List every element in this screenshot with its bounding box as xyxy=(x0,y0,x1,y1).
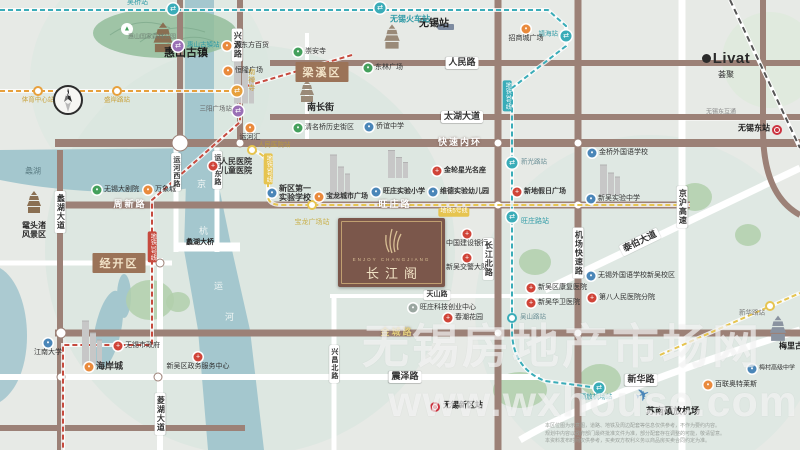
map-text: 蠡湖 xyxy=(25,168,41,177)
building-icon xyxy=(615,177,620,196)
poi-icon: + xyxy=(433,167,442,176)
road-label: 蠡湖大桥 xyxy=(186,239,214,247)
livat-brand: Livat xyxy=(713,50,751,67)
compass-icon: N xyxy=(51,83,85,117)
road-label: 周新路 xyxy=(113,200,146,210)
road-label: 太湖大道 xyxy=(441,111,483,123)
poi-icon: ▪ xyxy=(224,67,233,76)
metro-station-icon xyxy=(114,88,120,94)
buildings-illustration xyxy=(388,150,408,178)
poi-label: 崇安寺 xyxy=(305,48,326,56)
poi-label: 第八人民医院分院 xyxy=(599,294,655,302)
livat-logo-icon xyxy=(702,54,711,63)
poi-label: 梅村高级中学 xyxy=(759,366,795,373)
metro-station-icon: ⇄ xyxy=(594,383,605,394)
railway-station-label: 无锡新区站 xyxy=(443,402,483,411)
metro-line-badge: 地铁1号线 xyxy=(148,231,157,262)
metro-station-icon: ⇄ xyxy=(561,31,572,42)
poi-icon: ▪ xyxy=(294,124,303,133)
poi-label: 新地假日广场 xyxy=(524,188,566,196)
road-label: 快速内环 xyxy=(438,138,482,148)
metro-station-label: 新华路站 xyxy=(739,309,765,316)
disclaimer-text: 本区位图为示意图，道路、地铁及周边配套等信息仅供参考，不作为要约内容。 规划中内… xyxy=(545,423,795,446)
railway-station-icon xyxy=(772,125,782,135)
map-text: 鼋头渚 风景区 xyxy=(22,222,46,240)
map-text: 惠山古镇 xyxy=(164,47,208,59)
metro-station-label: 新光路站 xyxy=(521,158,547,165)
poi-icon: ▪ xyxy=(409,304,418,313)
building-icon xyxy=(403,162,408,178)
svg-text:N: N xyxy=(66,92,70,98)
poi-icon: ▪ xyxy=(522,25,531,34)
map-text: 杭 xyxy=(199,227,208,237)
metro-station-icon: ⇄ xyxy=(232,86,243,97)
poi-label: 新区第一 实验学校 xyxy=(279,184,311,202)
metro-station-label: 三阳广场站 xyxy=(200,105,233,112)
metro-station-label: 惠山古镇站 xyxy=(187,41,220,48)
poi-icon: ▪ xyxy=(429,188,438,197)
road-label: 蠡湖大道 xyxy=(55,191,66,233)
poi-label: 中国建设银行 xyxy=(446,240,488,248)
disclaimer-line: 规划中内容以政府部门最终批准文件为准，部分配套存在调整的可能，敬请留意。 xyxy=(545,431,795,439)
poi-icon: + xyxy=(209,162,218,171)
poi-icon: ▪ xyxy=(294,48,303,57)
road-label: 震泽路 xyxy=(388,371,421,383)
district-badge: 经开区 xyxy=(93,253,146,273)
poi-label: 海岸城 xyxy=(96,362,123,372)
metro-station-icon: ⇄ xyxy=(173,41,184,52)
metro-station-icon xyxy=(309,202,315,208)
map-text: 运 xyxy=(214,282,223,292)
project-marker: ENJOY CHANGJIANG 长江阁 xyxy=(338,218,445,287)
poi-label: 新吴区政务服务中心 xyxy=(167,363,230,371)
poi-label: 旺庄科技创业中心 xyxy=(420,304,476,312)
poi-icon: ▪ xyxy=(85,363,94,372)
building-icon xyxy=(600,165,607,196)
poi-icon: + xyxy=(527,299,536,308)
buildings-illustration xyxy=(82,321,102,366)
project-marker-border xyxy=(341,221,442,284)
poi-icon: ▪ xyxy=(223,42,232,51)
metro-station-label: 吴山路站 xyxy=(520,313,546,320)
building-icon xyxy=(82,321,89,366)
disclaimer-line: 本资料发布时间仅供参考，买卖双方权利义务以商品房买卖合同约定为准。 xyxy=(545,438,795,446)
metro-station-icon xyxy=(35,88,41,94)
metro-station-label: 无锡火车站 xyxy=(390,16,430,25)
metro-station-icon xyxy=(767,303,773,309)
metro-station-label: 旺庄路站 xyxy=(521,218,549,226)
district-badge: 梁溪区 xyxy=(296,62,349,82)
road-label: 旺庄路 xyxy=(378,200,411,210)
poi-icon: ▪ xyxy=(246,124,255,133)
poi-label: 旺庄实验小学 xyxy=(383,188,425,196)
poi-icon: ▪ xyxy=(268,189,277,198)
livat-mall-logo: Livat 荟聚 xyxy=(688,50,764,80)
poi-label: 运河汇 xyxy=(240,134,261,142)
building-icon xyxy=(608,173,614,196)
poi-label: 维德实验幼儿园 xyxy=(440,188,489,196)
poi-icon: ▪ xyxy=(587,272,596,281)
poi-icon: + xyxy=(463,254,472,263)
building-icon xyxy=(388,150,395,178)
metro-station-label: 硕放机场站 xyxy=(580,393,613,400)
poi-label: 新吴交警大队 xyxy=(446,264,488,272)
railway-station-label: 无锡东站 xyxy=(738,125,770,134)
poi-label: 万象城 xyxy=(155,186,176,194)
road-label: 新华路 xyxy=(624,374,657,386)
poi-icon: + xyxy=(513,188,522,197)
poi-label: 金桥外国语学校 xyxy=(599,149,648,157)
poi-label: 江南大学 xyxy=(34,349,62,357)
poi-label: 无锡大剧院 xyxy=(104,186,139,194)
forest-park-icon: ▲ xyxy=(123,25,132,34)
metro-station-label: 体育中心站 xyxy=(22,96,55,103)
building-icon xyxy=(234,59,241,104)
poi-icon: + xyxy=(588,294,597,303)
poi-label: 百联奥特莱斯 xyxy=(715,381,757,389)
metro-station-icon: ⇄ xyxy=(507,158,518,169)
poi-icon: ▪ xyxy=(704,381,713,390)
metro-line-badge: 地铁5号线 xyxy=(438,208,469,217)
road-label: 天山路 xyxy=(424,290,451,300)
road-label: 人民路 xyxy=(445,57,478,69)
poi-icon: ▪ xyxy=(588,149,597,158)
poi-label: 大东方百货 xyxy=(234,42,269,50)
poi-icon: ▪ xyxy=(365,123,374,132)
poi-label: 无锡外国语学校新吴校区 xyxy=(598,272,675,280)
poi-label: 春潮花园 xyxy=(455,314,483,322)
metro-station-label: 人民医院站 xyxy=(258,141,291,148)
railway-station-icon xyxy=(430,402,440,412)
poi-icon: + xyxy=(114,342,123,351)
poi-icon: + xyxy=(527,284,536,293)
road-label: 兴昌北路 xyxy=(329,345,339,383)
location-map: 地铁1号线地铁3号线地铁5号线地铁5号线▲✈梁溪区经开区人民路太湖大道快速内环周… xyxy=(0,0,800,450)
metro-station-icon xyxy=(249,147,255,153)
pagoda-icon xyxy=(27,191,41,213)
poi-icon: + xyxy=(194,353,203,362)
map-text: 京 xyxy=(197,180,206,190)
livat-brand-cn: 荟聚 xyxy=(688,69,764,80)
poi-label: 清名桥历史街区 xyxy=(305,124,354,132)
map-text: 南长街 xyxy=(307,103,334,113)
poi-label: 人民医院 儿童医院 xyxy=(220,157,252,175)
buildings-illustration xyxy=(600,165,620,196)
road-label: 京沪高速 xyxy=(677,186,688,228)
poi-icon: + xyxy=(463,230,472,239)
poi-label: 东林广场 xyxy=(375,64,403,72)
poi-label: 新吴区康复医院 xyxy=(538,284,587,292)
road-label: 金城路 xyxy=(380,328,413,338)
poi-label: 金轮星光名座 xyxy=(444,167,486,175)
poi-label: 恒隆广场 xyxy=(235,67,263,75)
map-text: 惠山国家森林公园 xyxy=(128,35,176,42)
poi-icon: ▪ xyxy=(372,188,381,197)
railway-station-dot xyxy=(775,128,779,132)
map-text: 苏南硕放机场 xyxy=(646,407,700,417)
poi-label: 宝龙城市广场 xyxy=(326,193,368,201)
map-text: 河 xyxy=(225,313,234,323)
map-text: 梅里古镇 xyxy=(779,343,800,352)
poi-label: 新吴华卫医院 xyxy=(538,299,580,307)
poi-icon: ▪ xyxy=(364,64,373,73)
map-text: 无锡东互通 xyxy=(706,110,736,117)
metro-station-label: 宝龙广场站 xyxy=(295,219,330,227)
disclaimer-line: 本区位图为示意图，道路、地铁及周边配套等信息仅供参考，不作为要约内容。 xyxy=(545,423,795,431)
pagoda-icon xyxy=(384,24,399,48)
poi-icon: ▪ xyxy=(315,193,324,202)
railway-station-dot xyxy=(433,405,437,409)
metro-station-icon: ⇄ xyxy=(375,3,386,14)
metro-station-label: 盛岸路站 xyxy=(104,96,130,103)
metro-line-badge: 地铁3号线 xyxy=(503,80,512,111)
poi-icon: ▪ xyxy=(93,186,102,195)
metro-station-icon: ⇄ xyxy=(507,212,518,223)
poi-icon: ▪ xyxy=(587,195,596,204)
poi-label: 新吴实验中学 xyxy=(598,195,640,203)
poi-label: 无锡市政府 xyxy=(125,342,160,350)
building-icon xyxy=(396,157,402,178)
poi-label: 招商城广场 xyxy=(509,35,544,43)
poi-icon: + xyxy=(444,314,453,323)
road-label: 菱湖大道 xyxy=(155,393,166,435)
metro-station-icon: ⇄ xyxy=(168,4,179,15)
poi-icon: ▪ xyxy=(748,365,757,374)
poi-icon: ▪ xyxy=(44,339,53,348)
metro-station-icon: ⇄ xyxy=(233,106,244,117)
metro-station-icon xyxy=(509,315,515,321)
metro-station-label: 吴桥站 xyxy=(127,0,148,7)
poi-label: 侨谊中学 xyxy=(376,123,404,131)
road-label: 机场快速路 xyxy=(573,228,584,279)
metro-line-badge: 地铁5号线 xyxy=(264,153,273,184)
poi-icon: ▪ xyxy=(144,186,153,195)
